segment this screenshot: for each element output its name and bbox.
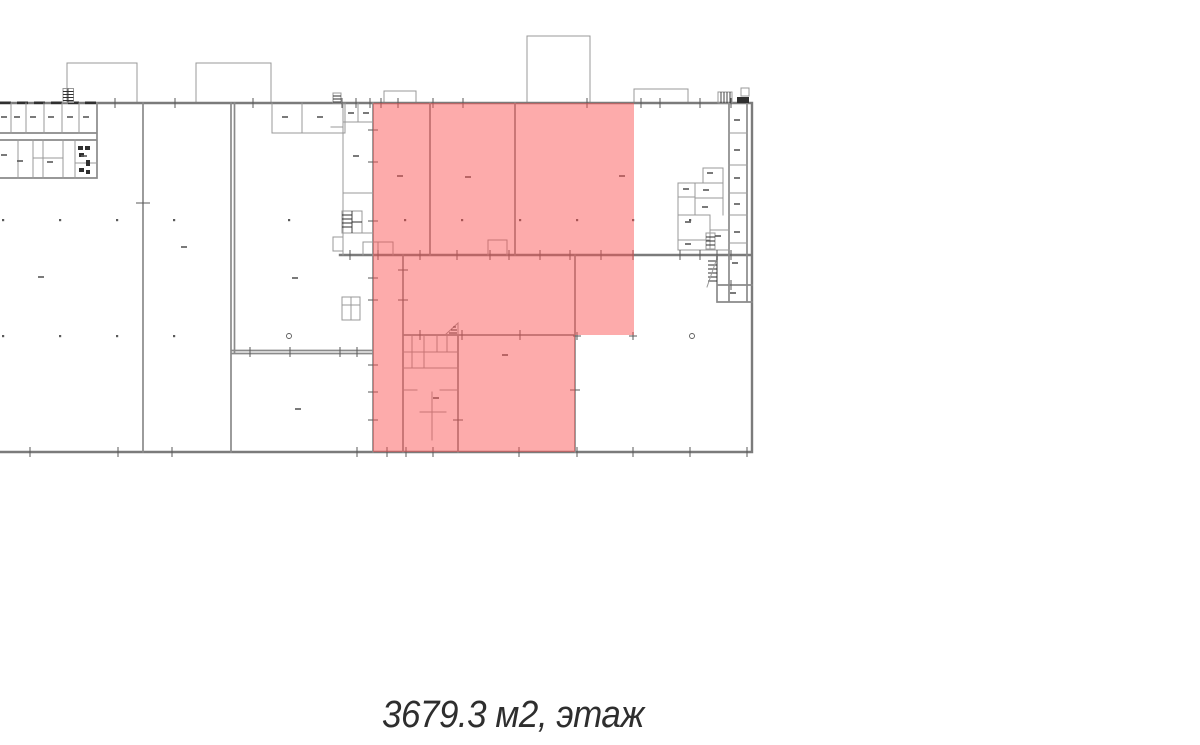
east-rooms-cluster xyxy=(678,168,729,250)
stairs-icon-east-lower xyxy=(707,258,717,287)
floor-plan xyxy=(0,0,1200,745)
sanitary-fixtures-icon xyxy=(78,146,90,174)
stairs-icon-top-right xyxy=(718,88,749,103)
stairs-icon-top-left xyxy=(63,89,74,103)
floor-plan-page: { "theme": { "page-bg": "#ffffff", "wall… xyxy=(0,0,1200,745)
floor-plan-canvas xyxy=(0,0,1200,745)
north-rooms-walls xyxy=(272,103,345,133)
area-caption: 3679.3 м2, этаж xyxy=(382,694,644,737)
stairs-icon-strip xyxy=(342,211,362,233)
building-protrusions xyxy=(67,36,688,103)
highlighted-floor-area[interactable] xyxy=(373,103,634,452)
stairs-icon-strip-top xyxy=(333,93,341,103)
